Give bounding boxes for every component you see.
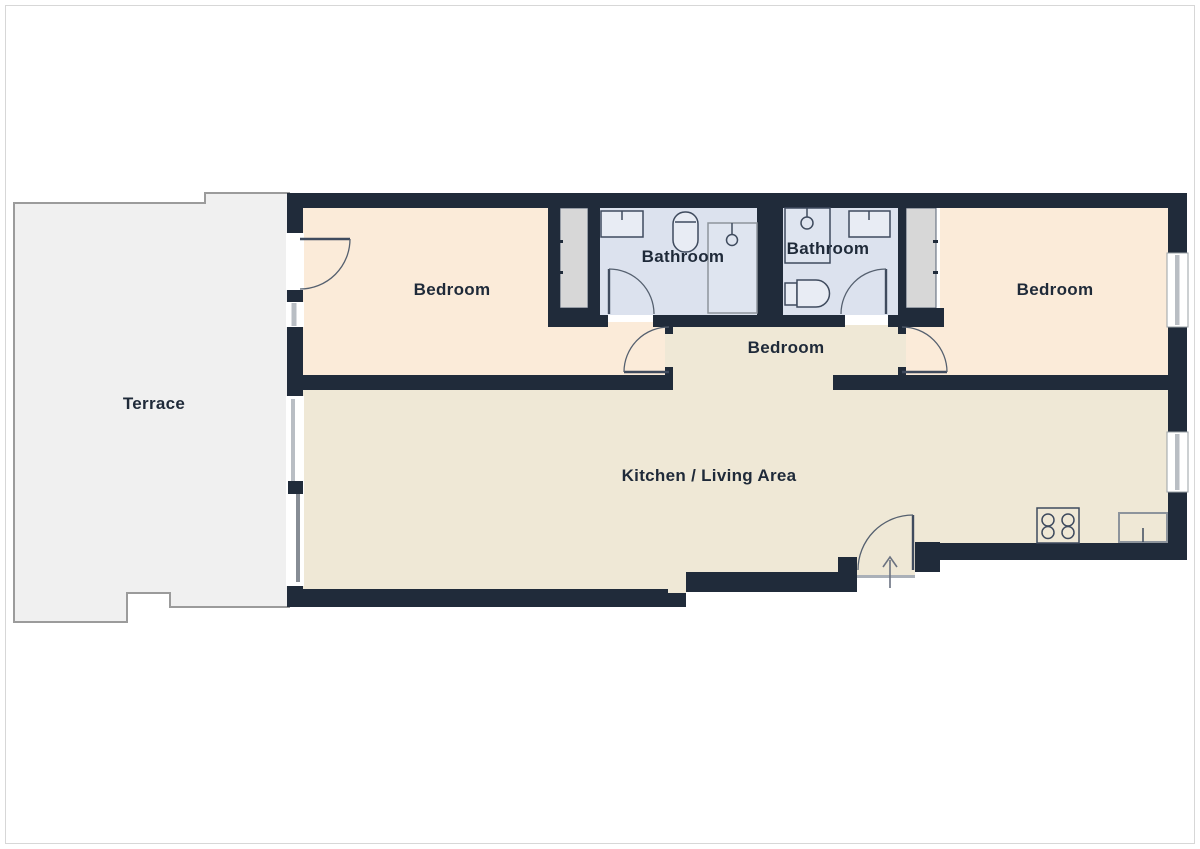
toilet-right-bathroom xyxy=(785,280,830,307)
wall-right xyxy=(1168,193,1187,560)
wall-entry-jamb-left xyxy=(838,557,857,592)
stove-4-burner xyxy=(1037,508,1079,543)
kitchen-living-label: Kitchen / Living Area xyxy=(622,466,797,485)
kitchen-living-floor xyxy=(303,390,1168,593)
wall-bath-right-a xyxy=(783,315,845,327)
wardrobe-left xyxy=(560,208,588,308)
basin-left-bathroom xyxy=(601,211,643,237)
toilet-left-bathroom xyxy=(673,212,698,252)
wall-top xyxy=(287,193,1187,208)
wall-wardrobe-left-base xyxy=(548,308,600,327)
shower-left-bathroom xyxy=(708,223,757,313)
window-left-glazing xyxy=(292,303,297,326)
bedroom-right-label: Bedroom xyxy=(1017,280,1094,299)
floor-plan-drawing: Terrace Bedroom Bathroom Bathroom Bedroo… xyxy=(0,0,1200,849)
wall-bath-left-a xyxy=(600,315,608,327)
bathroom-left-label: Bathroom xyxy=(642,247,725,266)
basin-right-bathroom xyxy=(849,211,890,237)
wall-bottom-middle xyxy=(686,572,838,592)
wall-divider-left xyxy=(287,375,673,390)
slider-panel-top xyxy=(291,399,295,489)
bedroom-left-label: Bedroom xyxy=(414,280,491,299)
floor-plan-page: Terrace Bedroom Bathroom Bathroom Bedroo… xyxy=(0,0,1200,849)
window-kitchen-glazing xyxy=(1175,434,1180,490)
wall-shaft xyxy=(757,193,783,327)
kitchen-sink xyxy=(1119,513,1167,542)
terrace-door-opening xyxy=(286,233,304,290)
window-right-bedroom-glazing xyxy=(1175,255,1180,325)
wall-bottom-left xyxy=(287,589,686,607)
entrance-threshold xyxy=(857,575,915,578)
wall-stub-middle-left xyxy=(665,315,673,334)
bedroom-middle-label: Bedroom xyxy=(748,338,825,357)
slider-panel-bottom xyxy=(296,487,300,582)
wall-bottom-right xyxy=(940,543,1187,560)
floor-step-notch xyxy=(668,589,686,593)
wall-stub-middle-right xyxy=(898,315,906,334)
wall-wardrobe-left-a xyxy=(548,208,560,308)
wall-wardrobe-left-b xyxy=(588,208,600,308)
terrace-label: Terrace xyxy=(123,394,185,413)
slider-junction xyxy=(288,481,303,494)
bathroom-right-label: Bathroom xyxy=(787,239,870,258)
wall-entry-jamb-right xyxy=(915,542,940,572)
wardrobe-right xyxy=(906,208,936,308)
wall-divider-right xyxy=(833,375,1168,390)
